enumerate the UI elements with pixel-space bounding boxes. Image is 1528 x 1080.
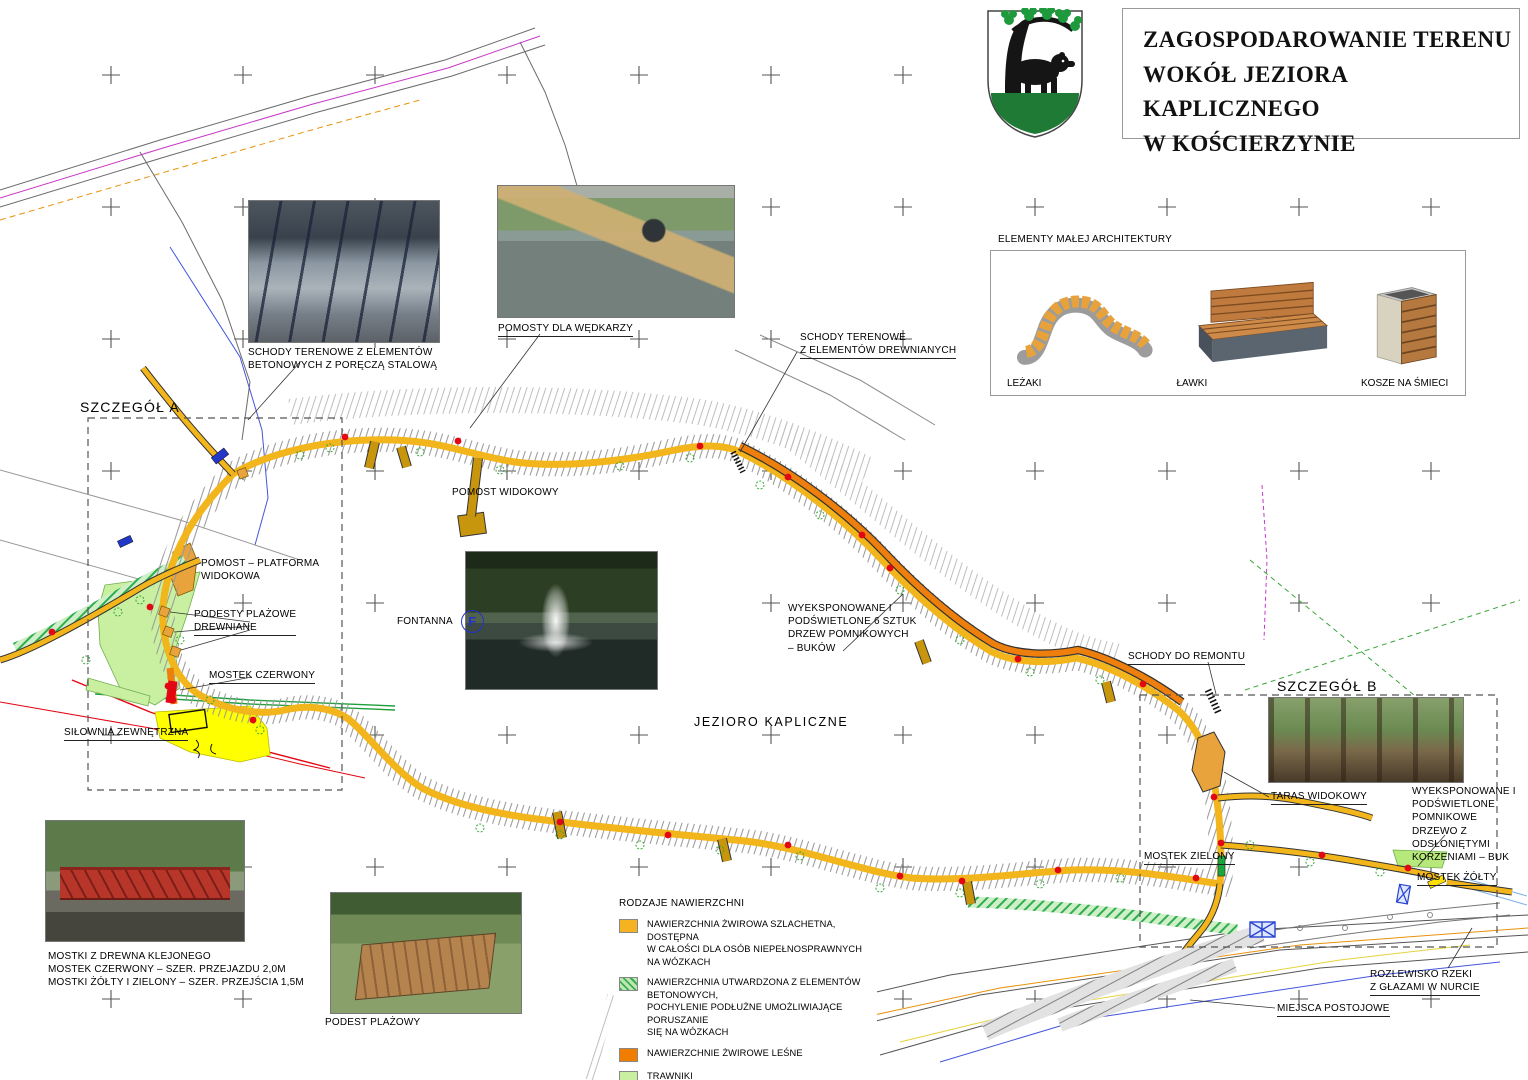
plan-features bbox=[117, 448, 1446, 937]
label-mostek-zolty: MOSTEK ŻÓŁTY bbox=[1417, 871, 1497, 886]
red-bridge-in-photo bbox=[60, 867, 230, 901]
legend-item: TRAWNIKI bbox=[619, 1070, 877, 1080]
legend-text: NAWIERZCHNIA UTWARDZONA Z ELEMENTÓW BETO… bbox=[647, 976, 877, 1039]
small-architecture-box: LEŻAKI ŁAWKI KOSZE NA ŚMIECI bbox=[990, 250, 1466, 396]
legend-swatch-lawn bbox=[619, 1071, 638, 1080]
label-szczegol-b: SZCZEGÓŁ B bbox=[1277, 677, 1378, 695]
main-gravel-loop bbox=[163, 440, 1221, 884]
title-line-2: WOKÓŁ JEZIORA KAPLICZNEGO bbox=[1143, 58, 1519, 127]
legend-item: NAWIERZCHNIE ŻWIROWE LEŚNE bbox=[619, 1047, 877, 1062]
label-schody-betonowe: SCHODY TERENOWE Z ELEMENTÓW BETONOWYCH Z… bbox=[248, 346, 437, 372]
label-buk: WYEKSPONOWANE I PODŚWIETLONE POMNIKOWE D… bbox=[1412, 785, 1528, 864]
title-line-1: ZAGOSPODAROWANIE TERENU bbox=[1143, 23, 1519, 58]
label-miejsca-postojowe: MIEJSCA POSTOJOWE bbox=[1277, 1002, 1390, 1017]
label-pomost-platforma: POMOST – PLATFORMA WIDOKOWA bbox=[201, 557, 319, 583]
label-schody-drewniane: SCHODY TERENOWE Z ELEMENTÓW DREWNIANYCH bbox=[800, 331, 956, 359]
label-buki: WYEKSPONOWANE I PODŚWIETLONE 6 SZTUK DRZ… bbox=[788, 602, 916, 655]
trash-bin-icon bbox=[1361, 272, 1449, 376]
label-mostek-zielony: MOSTEK ZIELONY bbox=[1144, 850, 1235, 865]
photo-concrete-stairs bbox=[248, 200, 440, 343]
label-schody-remont: SCHODY DO REMONTU bbox=[1128, 650, 1245, 665]
label-rozlewisko: ROZLEWISKO RZEKI Z GŁAZAMI W NURCIE bbox=[1370, 968, 1480, 996]
fountain-symbol: F bbox=[461, 610, 484, 633]
legend-text: NAWIERZCHNIE ŻWIROWE LEŚNE bbox=[647, 1047, 803, 1060]
photo-beach-deck bbox=[330, 892, 522, 1014]
lounger-icon bbox=[1007, 272, 1157, 376]
wood-deck-in-photo bbox=[354, 932, 495, 999]
lounger-label: LEŻAKI bbox=[1007, 378, 1157, 389]
surface-legend: RODZAJE NAWIERZCHNI NAWIERZCHNIA ŻWIROWA… bbox=[615, 898, 877, 1080]
legend-item: NAWIERZCHNIA ŻWIROWA SZLACHETNA, DOSTĘPN… bbox=[619, 918, 877, 968]
label-mostki-info: MOSTKI Z DREWNA KLEJONEGO MOSTEK CZERWON… bbox=[48, 950, 304, 990]
legend-item: NAWIERZCHNIA UTWARDZONA Z ELEMENTÓW BETO… bbox=[619, 976, 877, 1039]
title-block: ZAGOSPODAROWANIE TERENU WOKÓŁ JEZIORA KA… bbox=[1122, 8, 1520, 139]
photo-viewing-terrace bbox=[1268, 697, 1464, 783]
crest-shield-icon bbox=[983, 8, 1087, 140]
site-plan-sheet: SZCZEGÓŁ A SCHODY TERENOWE Z ELEMENTÓW B… bbox=[0, 0, 1528, 1080]
label-pomosty-wedkarzy: POMOSTY DLA WĘDKARZY bbox=[498, 322, 633, 337]
label-mostek-czerwony: MOSTEK CZERWONY bbox=[209, 669, 315, 684]
bench-icon bbox=[1177, 272, 1342, 376]
label-fontanna: FONTANNA F bbox=[397, 610, 484, 633]
fontanna-text: FONTANNA bbox=[397, 615, 453, 628]
legend-text: NAWIERZCHNIA ŻWIROWA SZLACHETNA, DOSTĘPN… bbox=[647, 918, 877, 968]
legend-swatch-concrete bbox=[619, 977, 638, 991]
title-line-3: W KOŚCIERZYNIE bbox=[1143, 127, 1519, 162]
legend-header: RODZAJE NAWIERZCHNI bbox=[619, 898, 877, 909]
label-jezioro-kapliczne: JEZIORO KAPLICZNE bbox=[694, 714, 848, 731]
parking-stalls bbox=[985, 933, 1262, 1032]
legend-text: TRAWNIKI bbox=[647, 1070, 693, 1080]
label-silownia: SIŁOWNIA ZEWNĘTRZNA bbox=[64, 726, 188, 741]
photo-red-bridge bbox=[45, 820, 245, 942]
legend-swatch-gravel-noble bbox=[619, 919, 638, 933]
label-pomost-widokowy: POMOST WIDOKOWY bbox=[452, 486, 559, 499]
label-elementy-header: ELEMENTY MAŁEJ ARCHITEKTURY bbox=[998, 233, 1172, 246]
bench-label: ŁAWKI bbox=[1177, 378, 1342, 389]
label-taras-widokowy: TARAS WIDOKOWY bbox=[1271, 790, 1367, 805]
trash-bin-label: KOSZE NA ŚMIECI bbox=[1361, 378, 1449, 389]
element-lawki: ŁAWKI bbox=[1177, 259, 1342, 389]
photo-fountain bbox=[465, 551, 658, 690]
koscierzyna-crest bbox=[983, 8, 1087, 140]
label-szczegol-a: SZCZEGÓŁ A bbox=[80, 398, 180, 416]
label-podesty-plazowe: PODESTY PLAŻOWE DREWNIANE bbox=[194, 608, 296, 636]
element-lezaki: LEŻAKI bbox=[1007, 259, 1157, 389]
element-kosze: KOSZE NA ŚMIECI bbox=[1361, 259, 1449, 389]
label-podest-plazowy: PODEST PLAŻOWY bbox=[325, 1016, 420, 1029]
legend-swatch-gravel-forest bbox=[619, 1048, 638, 1062]
photo-fishing-pier bbox=[497, 185, 735, 318]
